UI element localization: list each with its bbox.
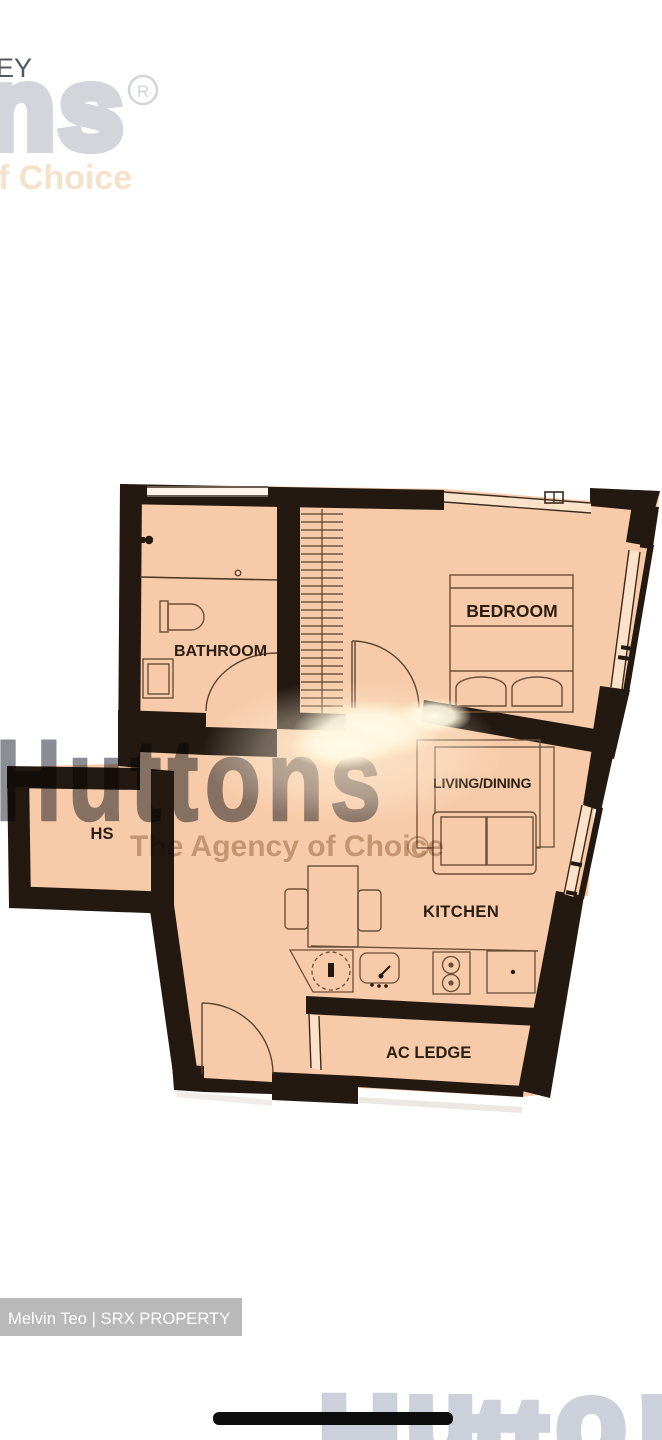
svg-text:KITCHEN: KITCHEN — [423, 903, 499, 921]
svg-text:n: n — [638, 1356, 662, 1440]
svg-text:BATHROOM: BATHROOM — [174, 643, 267, 660]
svg-text:o: o — [556, 1358, 626, 1440]
svg-text:t: t — [472, 1376, 510, 1440]
svg-text:BEDROOM: BEDROOM — [466, 601, 557, 621]
svg-text:The Agency of Choice: The Agency of Choice — [130, 830, 444, 863]
svg-text:f Choice: f Choice — [0, 159, 132, 197]
svg-text:t: t — [510, 1376, 548, 1440]
svg-text:Huttons: Huttons — [0, 45, 127, 173]
svg-text:Melvin Teo | SRX PROPERTY: Melvin Teo | SRX PROPERTY — [8, 1309, 230, 1328]
svg-text:u: u — [406, 1356, 476, 1440]
svg-text:AC LEDGE: AC LEDGE — [386, 1044, 471, 1062]
svg-text:H: H — [318, 1373, 401, 1440]
svg-text:R: R — [137, 82, 149, 101]
